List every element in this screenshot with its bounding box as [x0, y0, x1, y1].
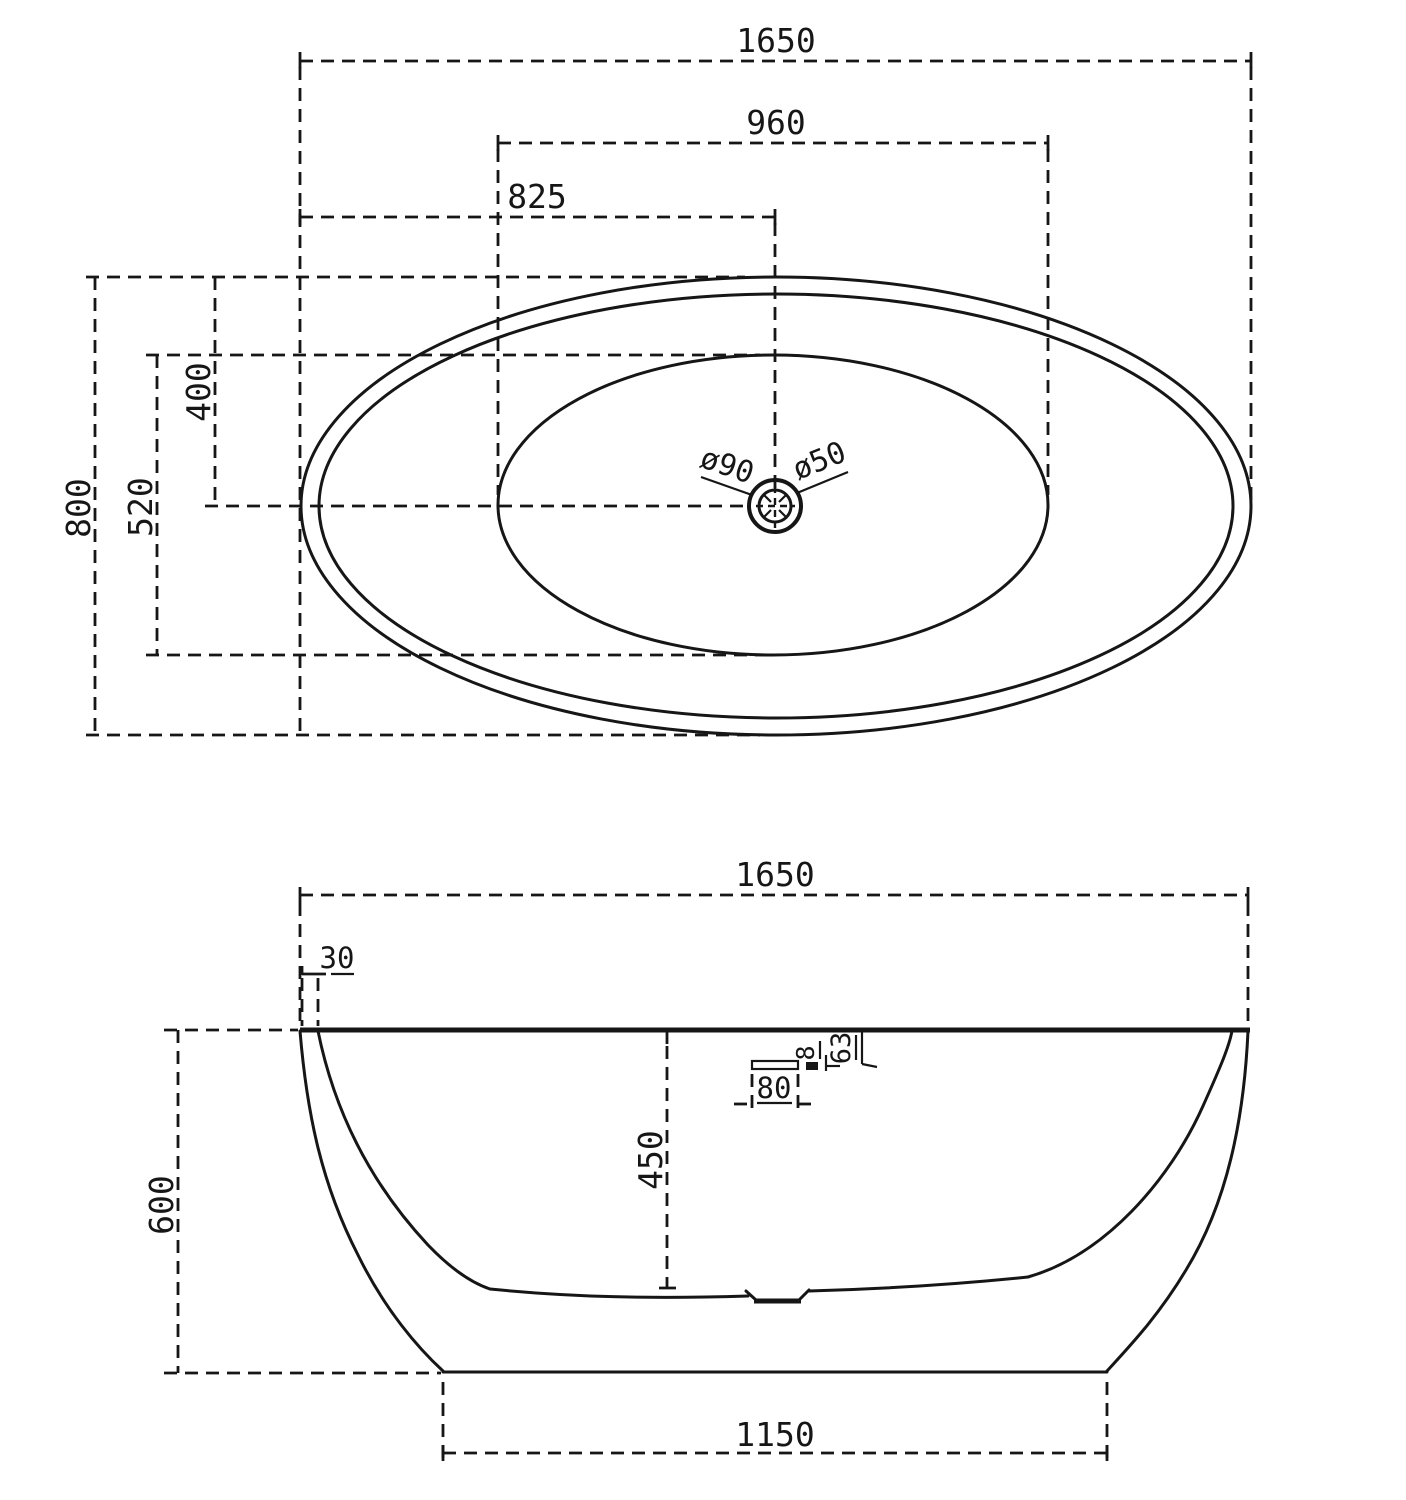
- label-rim-thickness: 30: [320, 941, 355, 975]
- label-height: 600: [142, 1175, 181, 1235]
- overflow-slot: [752, 1061, 798, 1069]
- label-base-length: 1150: [735, 1415, 814, 1454]
- label-drain-offset-y: 400: [179, 362, 218, 422]
- label-inner-depth: 450: [631, 1130, 670, 1190]
- top-view: 1650 960 825 400 520 800 ø90 ø50: [59, 21, 1251, 737]
- label-inner-length: 960: [746, 103, 806, 142]
- label-drain-offset-x: 825: [507, 177, 567, 216]
- label-drain-waste-diameter: ø50: [788, 435, 851, 488]
- label-overall-length-side: 1650: [735, 855, 814, 894]
- bracket-63-foot: [862, 1064, 877, 1067]
- label-overall-width: 800: [59, 478, 98, 538]
- technical-drawing-page: 1650 960 825 400 520 800 ø90 ø50: [0, 0, 1406, 1500]
- label-drain-outer-diameter: ø90: [696, 441, 759, 492]
- tub-inner-wall-left: [318, 1031, 490, 1289]
- label-overflow-width: 80: [757, 1071, 792, 1105]
- tub-basin-floor-left: [490, 1289, 748, 1297]
- side-view: 1650 30 600 450 80 8 63: [142, 855, 1250, 1466]
- label-inner-width: 520: [121, 477, 160, 537]
- label-overflow-height: 8: [791, 1045, 820, 1060]
- label-overflow-offset: 63: [826, 1032, 857, 1065]
- overflow-dim-terminator: [806, 1062, 818, 1070]
- bathtub-drawing-svg: 1650 960 825 400 520 800 ø90 ø50: [0, 0, 1406, 1500]
- tub-outer-wall-left: [300, 1031, 443, 1371]
- tub-outer-wall-right: [1107, 1031, 1248, 1371]
- label-overall-length-top: 1650: [736, 21, 815, 60]
- tub-basin-floor-right: [809, 1277, 1028, 1291]
